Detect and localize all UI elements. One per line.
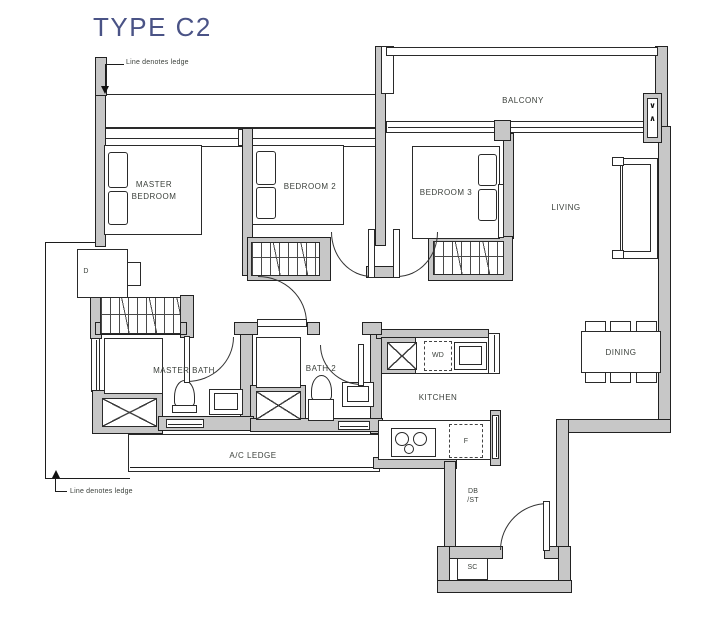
vent-glyph-bottom: ∧ [647,113,658,126]
room-label-ac-ledge: A/C LEDGE [193,450,313,462]
leader-line [106,64,124,65]
wall-segment [556,419,569,550]
master-bath-side-window [91,338,100,392]
wall-segment [234,322,258,335]
dresser-stool [127,262,141,286]
entry-door-arc [500,503,548,550]
wall-segment [362,322,382,335]
dining-chair [636,372,657,383]
balcony-sliding-door [386,121,656,133]
master-bath-window [166,419,204,428]
burner-icon [404,444,414,454]
ac-unit-box [256,391,301,420]
floor-plan: TYPE C2 ∨ ∧ [0,0,719,618]
master-toilet [174,380,195,407]
vent-glyph-top: ∨ [647,100,658,113]
bath2-toilet [311,375,332,401]
room-label-bath2: BATH 2 [289,363,353,375]
label-db-st: DB /ST [460,487,486,505]
ac-unit-box [102,398,157,427]
kitchen-window [488,333,500,374]
bath2-sink-basin [347,386,369,402]
kitchen-entry-window [492,415,499,459]
ledge-note-top: Line denotes ledge [126,58,189,67]
entry-door-leaf [543,501,550,551]
leader-line [55,491,67,492]
pillow [256,151,276,185]
ledge-top-rect [100,94,381,128]
wall-segment [307,322,320,335]
ledge-note-bottom: Line denotes ledge [70,487,133,496]
burner-icon [413,432,427,446]
wall-segment [494,120,511,141]
sofa-armrest [612,157,624,166]
pillow [478,154,497,186]
master-wardrobe [100,297,181,334]
bedroom2-door-leaf [368,229,375,278]
label-dresser: D [78,267,94,276]
balcony-parapet [386,47,658,56]
bath2-window [338,421,370,430]
ledge-line-bottom [45,478,130,479]
arrow-up-icon [52,470,60,478]
room-label-master-bedroom: MASTER BEDROOM [122,179,186,202]
master-suite-door-leaf [257,319,307,327]
sofa-armrest [612,250,624,259]
wall-segment [556,419,671,433]
dining-chair [585,372,606,383]
room-label-bedroom3: BEDROOM 3 [408,187,484,199]
room-label-master-bath: MASTER BATH [152,365,216,377]
room-label-kitchen: KITCHEN [406,392,470,404]
bedroom3-door-leaf [393,229,400,278]
bedroom2-wardrobe [251,242,320,276]
wall-segment [444,461,456,551]
bath2-door-leaf [358,344,364,386]
wall-segment [503,133,514,239]
ac-ledge-inner-line [130,467,378,468]
label-shoe-cabinet: SC [457,563,488,572]
master-sink-basin [214,393,238,410]
sofa-seat [622,164,651,252]
leader-line [55,477,56,492]
kitchen-sink-basin [459,346,482,365]
label-st: /ST [460,496,486,505]
bedroom2-door-arc [331,232,372,277]
master-toilet-base [172,405,197,413]
page-title: TYPE C2 [93,12,212,43]
bedroom3-wardrobe [433,241,504,275]
dining-chair [610,372,631,383]
wall-segment [437,580,572,593]
arrow-down-icon [101,86,109,94]
wall-segment [658,126,671,431]
vent-icon: ∨ ∧ [647,100,658,126]
room-label-bedroom2: BEDROOM 2 [272,181,348,193]
kitchen-duct-box [387,342,417,370]
master-suite-door-arc [258,276,307,323]
label-fridge: F [449,437,483,446]
ledge-line-top-connector [45,242,95,243]
room-label-living: LIVING [534,202,598,214]
room-label-dining: DINING [589,347,653,359]
leader-line [105,64,106,88]
bath2-toilet-base [308,399,334,421]
label-washer-dryer: WD [424,351,452,360]
room-label-balcony: BALCONY [491,95,555,107]
ledge-line-left [45,242,46,479]
label-db: DB [460,487,486,496]
tv-console [498,184,504,238]
